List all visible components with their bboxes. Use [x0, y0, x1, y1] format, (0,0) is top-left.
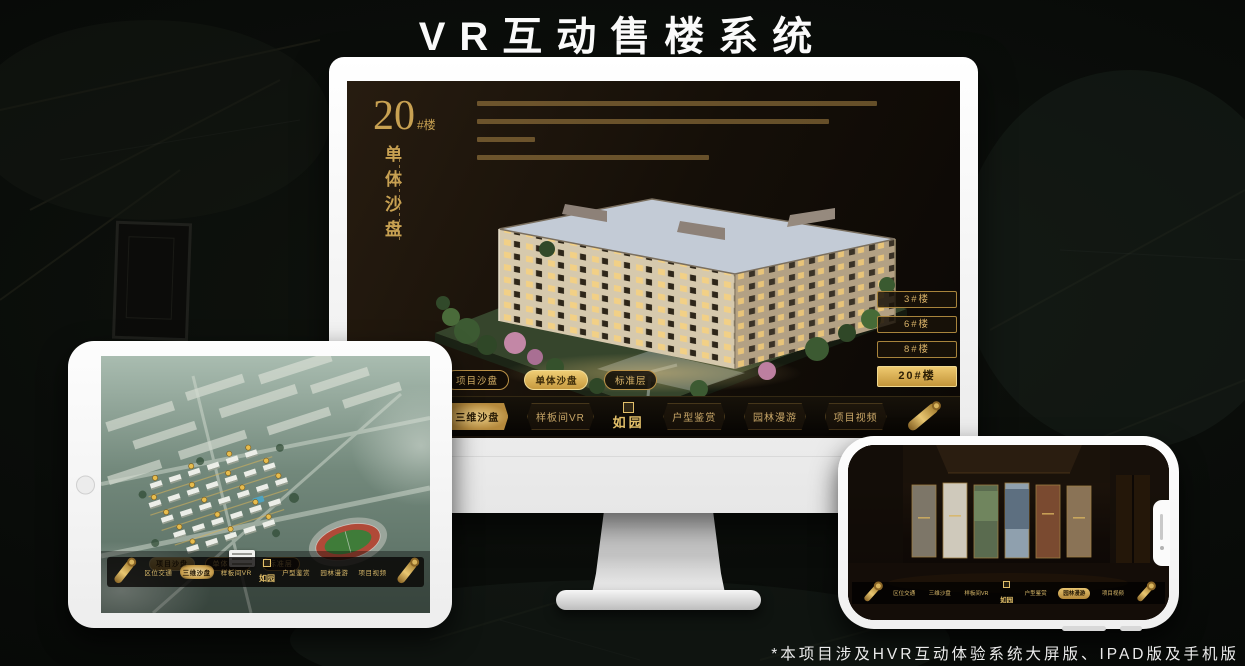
floor-button-20[interactable]: 20#楼 — [877, 366, 957, 387]
footnote-text: *本项目涉及HVR互动体验系统大屏版、IPAD版及手机版 — [771, 642, 1239, 664]
tablet-nav-location-traffic[interactable]: 区位交通 — [141, 565, 175, 579]
nav-item-project-video[interactable]: 项目视频 — [825, 403, 887, 430]
tablet-nav-floorplan[interactable]: 户型鉴赏 — [279, 565, 313, 579]
scroll-icon[interactable] — [906, 401, 940, 432]
phone-nav-model-room-vr[interactable]: 样板间VR — [962, 588, 990, 598]
phone-nav-location-traffic[interactable]: 区位交通 — [891, 588, 917, 598]
floor-button-group: 3#楼 6#楼 8#楼 20#楼 — [877, 291, 957, 395]
vertical-caption-decor — [399, 153, 400, 243]
tab-standard-floor[interactable]: 标准层 — [604, 370, 658, 390]
tab-single-sandtable[interactable]: 单体沙盘 — [524, 370, 588, 390]
phone-nav-bar: 区位交通 三维沙盘 样板间VR 如园 户型鉴赏 园林漫游 项目视频 — [852, 582, 1165, 604]
seal-icon — [623, 402, 634, 413]
seal-icon — [263, 559, 271, 567]
building-title-block: 20#楼 单体沙盘 — [373, 95, 436, 257]
phone-power-button[interactable] — [1062, 626, 1106, 631]
tablet-device: 项目沙盘 单体沙盘 标准层 区位交通 三维沙盘 样板间VR 如园 户型鉴赏 园林… — [68, 341, 452, 628]
nav-item-garden-tour[interactable]: 园林漫游 — [744, 403, 806, 430]
phone-nav-garden-tour[interactable]: 园林漫游 — [1058, 588, 1090, 599]
phone-nav-3d-sandtable[interactable]: 三维沙盘 — [927, 588, 953, 598]
monitor-stand-base — [556, 590, 761, 610]
tablet-home-button[interactable] — [76, 475, 95, 494]
building-number-suffix: #楼 — [417, 118, 436, 132]
phone-screen: 区位交通 三维沙盘 样板间VR 如园 户型鉴赏 园林漫游 项目视频 — [848, 445, 1169, 620]
promo-canvas: VR互动售楼系统 — [0, 0, 1245, 666]
building-subtitle-vertical: 单体沙盘 — [379, 145, 404, 257]
page-title: VR互动售楼系统 — [0, 4, 1245, 62]
tablet-nav-model-room-vr[interactable]: 样板间VR — [218, 565, 255, 579]
phone-device: 区位交通 三维沙盘 样板间VR 如园 户型鉴赏 园林漫游 项目视频 — [838, 436, 1179, 629]
speaker-icon — [1160, 514, 1163, 540]
scroll-icon-left[interactable] — [863, 584, 881, 603]
phone-nav-floorplan[interactable]: 户型鉴赏 — [1023, 588, 1049, 598]
scroll-icon-left[interactable] — [113, 559, 135, 584]
tablet-nav-project-video[interactable]: 项目视频 — [356, 565, 390, 579]
floor-button-3[interactable]: 3#楼 — [877, 291, 957, 308]
phone-notch — [1153, 500, 1170, 566]
nav-item-floorplan[interactable]: 户型鉴赏 — [663, 403, 725, 430]
phone-volume-button[interactable] — [1120, 626, 1142, 631]
scroll-icon-right[interactable] — [396, 559, 418, 584]
floor-button-8[interactable]: 8#楼 — [877, 341, 957, 358]
camera-icon — [1160, 546, 1164, 550]
nav-item-3d-sandtable[interactable]: 三维沙盘 — [446, 403, 508, 430]
scroll-icon-right[interactable] — [1137, 584, 1155, 603]
tablet-nav-garden-tour[interactable]: 园林漫游 — [317, 565, 351, 579]
tab-project-sandtable[interactable]: 项目沙盘 — [445, 370, 509, 390]
tablet-ruyuan-logo[interactable]: 如园 — [259, 559, 275, 585]
monitor-stand-neck — [592, 511, 725, 593]
tablet-nav-3d-sandtable[interactable]: 三维沙盘 — [180, 565, 214, 579]
phone-ruyuan-logo[interactable]: 如园 — [1000, 581, 1013, 606]
seal-icon — [1003, 581, 1010, 588]
phone-nav-project-video[interactable]: 项目视频 — [1100, 588, 1126, 598]
floor-button-6[interactable]: 6#楼 — [877, 316, 957, 333]
tablet-screen: 项目沙盘 单体沙盘 标准层 区位交通 三维沙盘 样板间VR 如园 户型鉴赏 园林… — [101, 356, 430, 613]
building-number: 20 — [373, 93, 415, 139]
ruyuan-logo[interactable]: 如园 — [613, 402, 645, 431]
view-tab-group: 项目沙盘 单体沙盘 标准层 — [445, 370, 668, 390]
tablet-nav-bar: 区位交通 三维沙盘 样板间VR 如园 户型鉴赏 园林漫游 项目视频 — [107, 557, 424, 587]
intro-text-lines — [477, 101, 887, 173]
nav-item-model-room-vr[interactable]: 样板间VR — [527, 403, 594, 430]
